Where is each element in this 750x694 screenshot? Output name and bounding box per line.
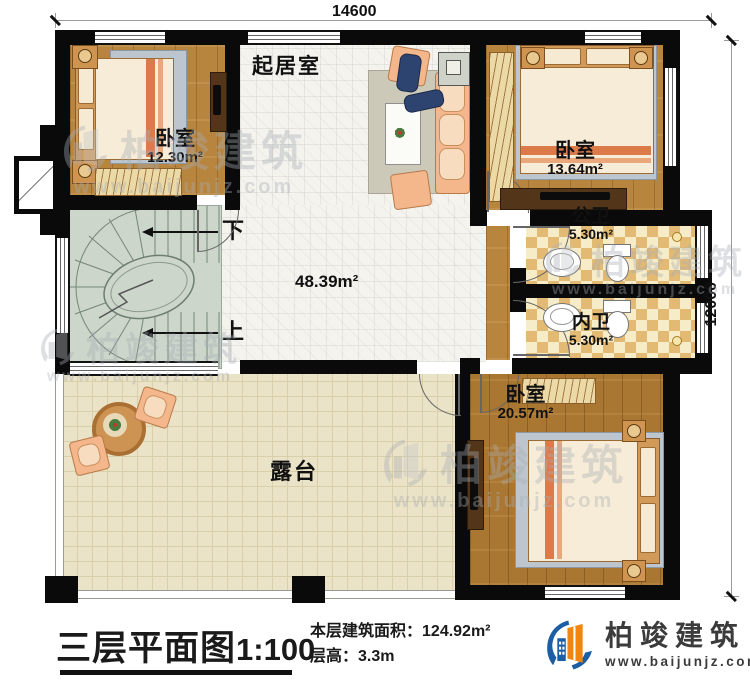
room-area: 12.30m² xyxy=(125,150,225,167)
hall-area-label: 48.39m² xyxy=(295,272,358,291)
room-label-bedroom2: 卧室 13.64m² xyxy=(530,140,620,179)
room-label-private-bath: 内卫 5.30m² xyxy=(556,312,626,349)
pillow xyxy=(640,447,656,497)
room-area: 13.64m² xyxy=(530,162,620,179)
window xyxy=(663,68,678,166)
room-area: 5.30m² xyxy=(556,227,626,243)
window xyxy=(545,585,625,600)
plan-title-text: 三层平面图 xyxy=(56,629,236,668)
corridor-floor xyxy=(486,226,510,360)
room-name: 内卫 xyxy=(556,312,626,333)
wall xyxy=(225,45,240,210)
plan-scale: 1:100 xyxy=(236,632,315,667)
room-name: 公卫 xyxy=(556,206,626,227)
dimension-line-top xyxy=(55,20,712,21)
tv xyxy=(470,458,478,510)
dimension-top-value: 14600 xyxy=(332,3,377,21)
floor-area-label: 本层建筑面积： xyxy=(310,623,422,640)
dimension-line-right xyxy=(731,40,732,597)
wardrobe xyxy=(95,168,182,196)
sofa-cushion xyxy=(439,148,465,180)
patio-table-top xyxy=(103,413,127,437)
room-label-terrace: 露台 xyxy=(270,460,318,485)
tv xyxy=(540,192,610,200)
title-underline xyxy=(60,670,292,675)
light-fixture xyxy=(672,336,682,346)
floor-height-row: 层高：3.3m xyxy=(310,645,491,670)
pillow xyxy=(78,108,94,150)
brand-logo-icon xyxy=(543,616,597,674)
toilet xyxy=(606,255,629,282)
room-name: 卧室 xyxy=(530,140,620,162)
room-label-bedroom3: 卧室 20.57m² xyxy=(478,384,573,423)
column xyxy=(292,576,325,603)
wardrobe xyxy=(489,52,514,202)
brand-name: 柏竣建筑 xyxy=(605,622,750,650)
room-label-living: 起居室 xyxy=(252,55,321,79)
wall xyxy=(238,195,240,210)
nightstand xyxy=(521,47,545,69)
dimension-right-value: 12000 xyxy=(703,282,721,327)
nightstand xyxy=(622,560,646,582)
sink xyxy=(543,248,581,277)
terrace-railing xyxy=(55,374,64,596)
window xyxy=(70,361,218,376)
floor-plan-sheet: 下 上 xyxy=(0,0,750,694)
floor-height-value: 3.3m xyxy=(358,648,394,665)
floor-area-row: 本层建筑面积：124.92m² xyxy=(310,620,491,645)
brand-logo: 柏竣建筑 www.baijunjz.com xyxy=(543,616,750,674)
flue-box xyxy=(14,156,58,214)
stairs-up-arrow xyxy=(142,328,153,338)
bed-stripe xyxy=(557,441,562,559)
wall xyxy=(460,358,480,374)
light-fixture xyxy=(672,232,682,242)
pillow xyxy=(640,503,656,553)
wall xyxy=(240,360,417,374)
wall xyxy=(55,195,197,210)
wall xyxy=(470,45,486,226)
door-leaf xyxy=(458,374,460,415)
room-name: 卧室 xyxy=(125,128,225,150)
brand-website: www.baijunjz.com xyxy=(605,654,750,669)
window xyxy=(585,30,641,45)
room-name: 卧室 xyxy=(478,384,573,406)
door-leaf xyxy=(513,354,569,356)
wall xyxy=(470,210,487,226)
sofa-cushion xyxy=(439,114,465,146)
window xyxy=(55,238,70,333)
nightstand xyxy=(622,420,646,442)
stairs-down-arrow xyxy=(142,227,153,237)
floor-area-value: 124.92m² xyxy=(422,623,491,640)
wall xyxy=(663,374,680,600)
flowers xyxy=(395,128,407,140)
monitor xyxy=(213,85,221,115)
door-leaf xyxy=(197,210,199,251)
bed-stripe xyxy=(545,441,554,559)
plan-title: 三层平面图1:100 xyxy=(56,620,315,671)
wall xyxy=(510,284,700,298)
title-block: 三层平面图1:100 本层建筑面积：124.92m² 层高：3.3m 柏竣建筑 … xyxy=(0,608,750,694)
room-area: 5.30m² xyxy=(556,333,626,349)
window xyxy=(248,30,340,45)
brand-text: 柏竣建筑 www.baijunjz.com xyxy=(605,622,750,669)
armchair xyxy=(390,170,433,211)
nightstand xyxy=(629,47,653,69)
floor-height-label: 层高： xyxy=(310,648,358,665)
room-label-public-bath: 公卫 5.30m² xyxy=(556,206,626,243)
nightstand xyxy=(72,45,98,69)
plan-info: 本层建筑面积：124.92m² 层高：3.3m xyxy=(310,620,491,670)
column xyxy=(45,576,78,603)
stairs-up-label: 上 xyxy=(222,320,244,345)
window xyxy=(95,30,165,45)
stairs-up-line xyxy=(152,332,218,334)
lamp xyxy=(446,60,461,75)
room-area: 20.57m² xyxy=(478,406,573,423)
terrace-railing xyxy=(55,590,455,599)
wall xyxy=(512,358,712,374)
window xyxy=(695,226,710,278)
room-label-bedroom1: 卧室 12.30m² xyxy=(125,128,225,167)
